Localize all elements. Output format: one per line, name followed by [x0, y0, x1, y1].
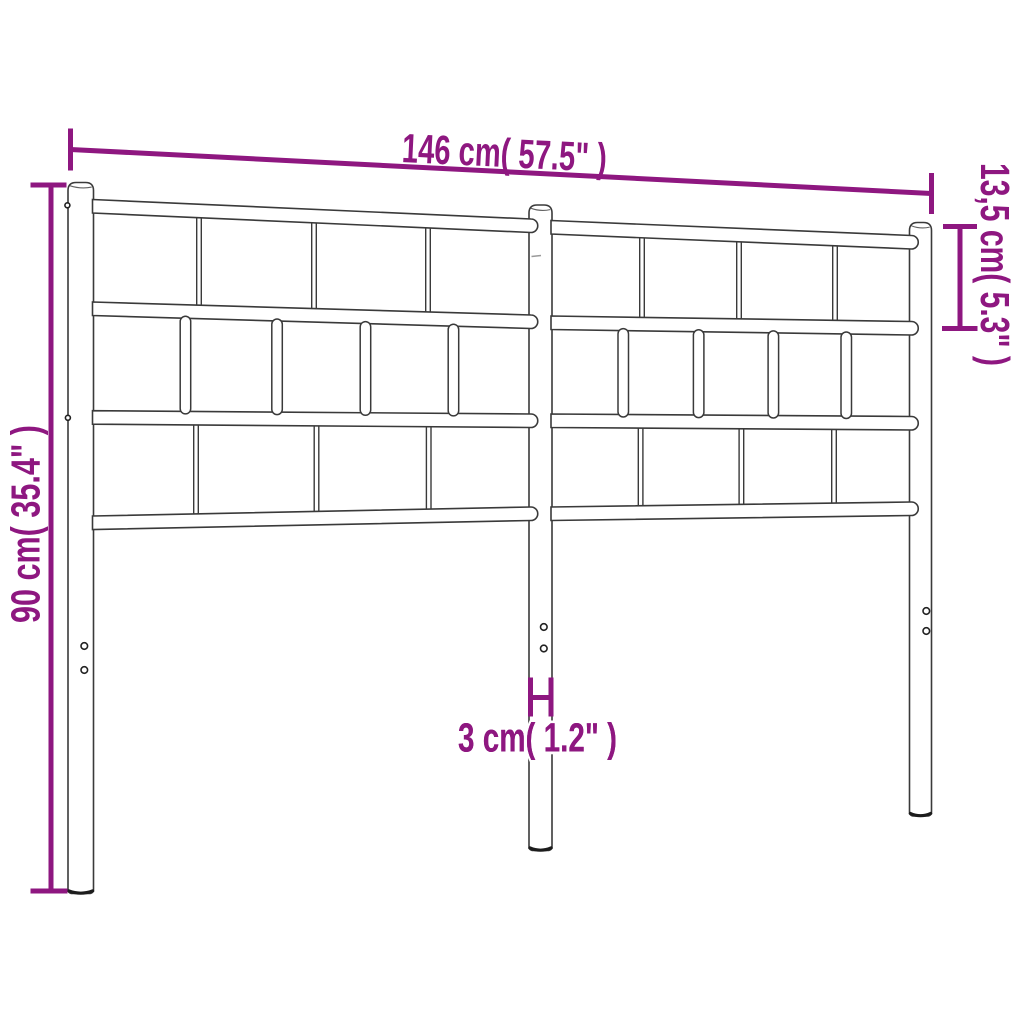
- svg-text:3 cm( 1.2" ): 3 cm( 1.2" ): [458, 714, 617, 760]
- svg-text:13,5 cm( 5.3" ): 13,5 cm( 5.3" ): [972, 163, 1018, 366]
- svg-text:90 cm( 35.4" ): 90 cm( 35.4" ): [3, 425, 49, 623]
